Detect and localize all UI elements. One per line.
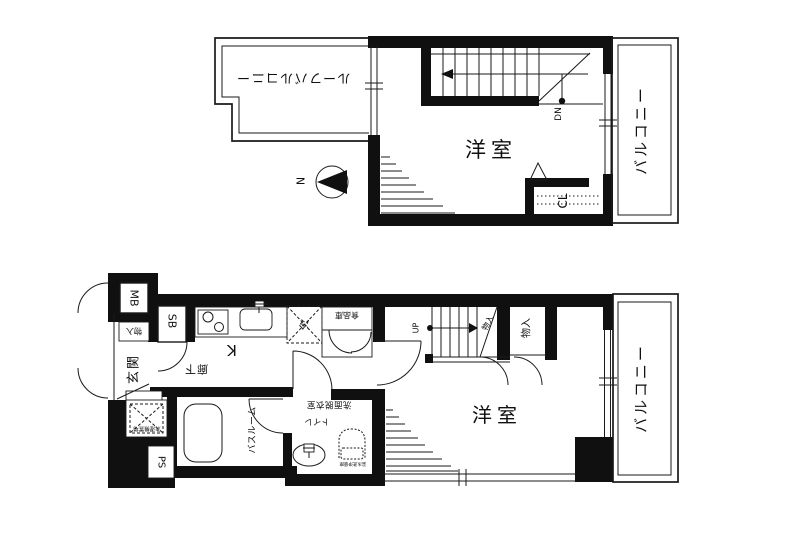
mb-right-wall xyxy=(148,273,158,342)
bath-bottom-wall xyxy=(167,466,297,478)
upper-left-wall xyxy=(368,135,380,226)
storage-closet-door-arcs xyxy=(480,357,542,385)
upper-sloped-ceiling-hatch xyxy=(381,157,455,213)
bath-washroom-wall xyxy=(283,433,292,478)
kitchen-sink xyxy=(240,309,272,330)
stair-down-start-dot xyxy=(559,98,565,104)
shoe-box-label: SB xyxy=(166,314,179,329)
roof-balcony-inner-edge xyxy=(222,46,369,133)
upper-stair-wall xyxy=(421,48,431,98)
kitchen-label: K xyxy=(226,341,237,359)
upper-balcony-label: バルコニー xyxy=(632,85,650,175)
washer-label: 洗濯機置場 xyxy=(133,425,161,433)
kitchen-left-wall xyxy=(186,294,195,342)
washroom-right-wall xyxy=(372,397,385,486)
upper-floor: ルーフバルコニー DN 洋室 CL バルコニ xyxy=(215,36,678,226)
washroom-label: 洗面脱衣室 xyxy=(306,399,351,410)
closet-label: CL xyxy=(556,193,570,208)
window-lower-balcony xyxy=(599,330,617,437)
stair-right-wall xyxy=(497,294,510,360)
stair-down-label: DN xyxy=(554,107,564,121)
upper-stair-treads xyxy=(443,48,539,96)
toilet-seat xyxy=(341,448,363,459)
floorplan-drawing: ルーフバルコニー DN 洋室 CL バルコニ xyxy=(0,0,801,540)
closet-left-wall xyxy=(525,178,534,226)
meter-box-label: MB xyxy=(128,289,141,306)
lower-stair-nib xyxy=(425,354,433,363)
closet-right-wall-lower xyxy=(545,294,557,360)
hallway-label: 廊下 xyxy=(184,363,208,377)
closet-top-wall xyxy=(525,178,589,187)
window-upper-balcony xyxy=(599,74,617,174)
bedroom-door xyxy=(377,341,421,385)
compass-needle-icon xyxy=(317,170,347,194)
upper-bedroom-label: 洋室 xyxy=(465,138,517,162)
kitchen-right-wall xyxy=(373,294,385,342)
under-stair-storage-label: 物入 xyxy=(479,313,495,332)
storage-closet-label: 物入 xyxy=(520,318,533,338)
roof-balcony-outer-edge xyxy=(215,38,369,141)
closet-door-mark xyxy=(530,163,547,180)
stove xyxy=(198,310,228,334)
lower-bedroom-label: 洋室 xyxy=(472,403,522,427)
lower-right-wall-top xyxy=(603,294,613,330)
lower-balcony-label: バルコニー xyxy=(632,343,650,433)
upper-stair-diagonal xyxy=(539,53,590,101)
refrigerator-label: 冷 xyxy=(299,318,310,331)
toilet-note-label: 温水洗浄便座 xyxy=(339,461,366,468)
bathtub xyxy=(184,404,222,462)
washroom-bottom-wall xyxy=(285,474,385,486)
roof-balcony-label: ルーフバルコニー xyxy=(236,70,351,85)
compass-north-label: N xyxy=(295,177,308,185)
window-roof-balcony xyxy=(365,46,383,135)
upper-bottom-wall xyxy=(368,214,613,226)
floorplan-canvas: ルーフバルコニー DN 洋室 CL バルコニ xyxy=(0,0,801,540)
entrance-door-arcs xyxy=(78,283,108,398)
stair-up-start-dot xyxy=(427,325,433,331)
mb-bottom-bar xyxy=(118,313,150,322)
upper-top-wall xyxy=(368,36,613,48)
lower-sloped-ceiling-hatch xyxy=(386,410,458,471)
pipe-space-label: PS xyxy=(156,456,167,468)
toilet-bowl xyxy=(339,429,365,458)
upper-stair-base-wall xyxy=(421,96,539,106)
lower-floor: MB 物入 玄関 SB K 廊下 冷 食品庫 xyxy=(78,273,678,488)
lower-right-corner-wall xyxy=(575,437,613,482)
entry-storage-label: 物入 xyxy=(126,327,142,337)
toilet-label: トイレ xyxy=(304,416,330,426)
shoe-box-door-arc xyxy=(158,342,187,371)
entrance-label: 玄関 xyxy=(127,354,142,384)
window-lower-bottom xyxy=(385,469,575,486)
pantry-label: 食品庫 xyxy=(335,311,359,321)
stair-up-label: UP xyxy=(412,322,421,333)
